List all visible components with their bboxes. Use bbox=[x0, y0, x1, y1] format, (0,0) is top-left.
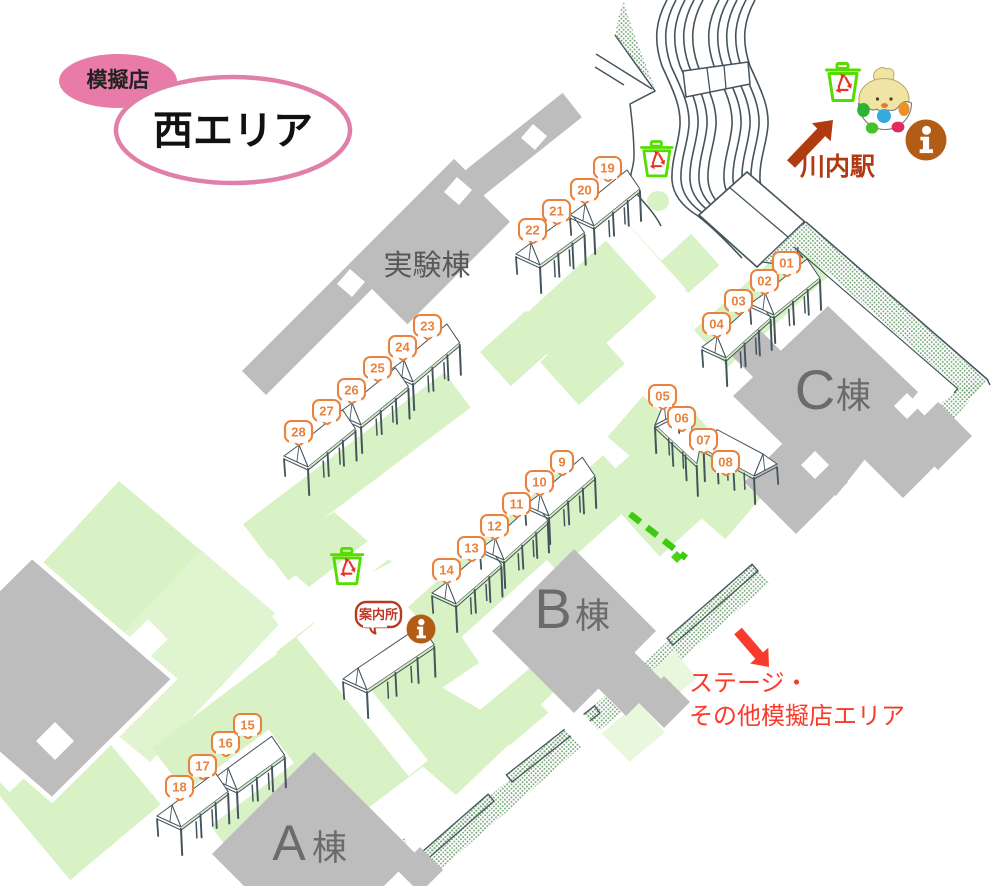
svg-text:21: 21 bbox=[549, 204, 563, 219]
svg-text:26: 26 bbox=[344, 383, 358, 398]
svg-text:15: 15 bbox=[240, 718, 254, 733]
svg-text:08: 08 bbox=[718, 455, 732, 470]
svg-text:17: 17 bbox=[195, 759, 209, 774]
svg-text:棟: 棟 bbox=[312, 829, 347, 868]
svg-text:18: 18 bbox=[172, 780, 186, 795]
svg-text:16: 16 bbox=[218, 736, 232, 751]
svg-text:06: 06 bbox=[674, 411, 688, 426]
svg-text:04: 04 bbox=[709, 317, 724, 332]
svg-text:実験棟: 実験棟 bbox=[383, 249, 470, 282]
svg-text:14: 14 bbox=[439, 563, 454, 578]
svg-text:28: 28 bbox=[291, 425, 305, 440]
svg-text:西エリア: 西エリア bbox=[153, 109, 313, 153]
svg-text:11: 11 bbox=[510, 497, 524, 512]
svg-text:棟: 棟 bbox=[836, 377, 871, 416]
svg-text:A: A bbox=[272, 815, 306, 871]
svg-text:その他模擬店エリア: その他模擬店エリア bbox=[689, 703, 905, 730]
svg-text:9: 9 bbox=[558, 455, 565, 470]
svg-text:12: 12 bbox=[487, 519, 501, 534]
svg-text:05: 05 bbox=[655, 389, 669, 404]
svg-text:23: 23 bbox=[420, 319, 434, 334]
svg-text:13: 13 bbox=[464, 541, 478, 556]
svg-text:川内駅: 川内駅 bbox=[800, 153, 875, 181]
svg-text:02: 02 bbox=[757, 274, 771, 289]
svg-text:10: 10 bbox=[532, 475, 546, 490]
svg-text:案内所: 案内所 bbox=[358, 607, 398, 622]
svg-text:22: 22 bbox=[525, 223, 539, 238]
svg-text:25: 25 bbox=[370, 361, 384, 376]
svg-text:棟: 棟 bbox=[575, 597, 610, 636]
svg-text:模擬店: 模擬店 bbox=[87, 68, 150, 92]
svg-text:03: 03 bbox=[731, 294, 745, 309]
svg-text:27: 27 bbox=[319, 404, 333, 419]
svg-text:07: 07 bbox=[696, 433, 710, 448]
svg-text:19: 19 bbox=[600, 161, 614, 176]
svg-text:24: 24 bbox=[395, 340, 410, 355]
svg-text:20: 20 bbox=[577, 183, 591, 198]
svg-text:ステージ・: ステージ・ bbox=[689, 670, 809, 697]
svg-text:B: B bbox=[534, 577, 571, 640]
svg-text:01: 01 bbox=[779, 256, 793, 271]
svg-text:C: C bbox=[795, 358, 835, 421]
